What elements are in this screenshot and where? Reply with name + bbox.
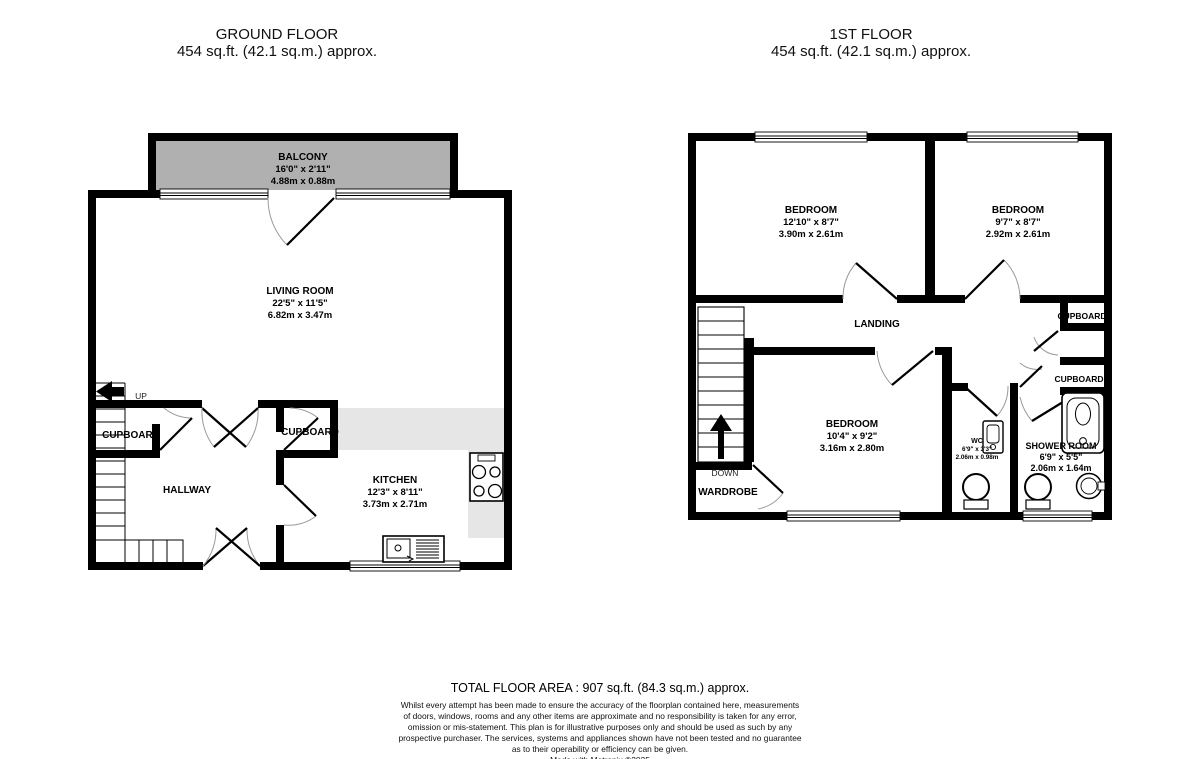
up-arrow-icon	[96, 381, 124, 402]
living-room-dims-ft: 22'5" x 11'5"	[272, 298, 327, 309]
bedroom1-dims-m: 3.90m x 2.61m	[779, 229, 843, 240]
ground-interior-walls	[96, 400, 338, 562]
first-floor-plan: BEDROOM 12'10" x 8'7" 3.90m x 2.61m BEDR…	[680, 125, 1120, 535]
stairs	[96, 381, 183, 562]
kitchen-label: KITCHEN	[373, 475, 417, 486]
window	[967, 132, 1078, 142]
bedroom3-dims-ft: 10'4" x 9'2"	[827, 431, 878, 442]
stove-icon	[470, 453, 503, 501]
living-room-label: LIVING ROOM	[266, 286, 333, 297]
hallway-label: HALLWAY	[163, 485, 211, 496]
disclaimer-line: prospective purchaser. The services, sys…	[0, 733, 1200, 744]
ground-floor-title: GROUND FLOOR	[77, 26, 477, 43]
metropix-credit: Made with Metropix ©2025	[0, 755, 1200, 759]
balcony-dims-ft: 16'0" x 2'11"	[275, 164, 330, 175]
cupboard-top-label: CUPBOARD	[1057, 311, 1106, 321]
first-floor-header: 1ST FLOOR 454 sq.ft. (42.1 sq.m.) approx…	[671, 26, 1071, 60]
toilet-icon	[1025, 474, 1051, 509]
shower-room-dims-m: 2.06m x 1.64m	[1030, 463, 1091, 473]
up-label: UP	[135, 391, 147, 401]
disclaimer-line: Whilst every attempt has been made to en…	[0, 700, 1200, 711]
cupboard-left-label: CUPBOARD	[102, 430, 160, 441]
wc-dims-m: 2.06m x 0.98m	[956, 454, 999, 461]
window	[1023, 511, 1092, 521]
first-floor-title: 1ST FLOOR	[671, 26, 1071, 43]
bedroom1-label: BEDROOM	[785, 205, 837, 216]
total-floor-area: TOTAL FLOOR AREA : 907 sq.ft. (84.3 sq.m…	[0, 681, 1200, 695]
window	[755, 132, 867, 142]
kitchen-dims-ft: 12'3" x 8'11"	[367, 487, 422, 498]
bedroom1-dims-ft: 12'10" x 8'7"	[783, 217, 839, 228]
ground-outer-walls	[88, 190, 512, 570]
bedroom2-dims-m: 2.92m x 2.61m	[986, 229, 1050, 240]
wc-dims-ft: 6'9" x 3'3"	[962, 446, 992, 453]
disclaimer-line: of doors, windows, rooms and any other i…	[0, 711, 1200, 722]
sink-icon	[383, 536, 444, 562]
floorplan-page: GROUND FLOOR 454 sq.ft. (42.1 sq.m.) app…	[0, 0, 1200, 759]
disclaimer: Whilst every attempt has been made to en…	[0, 700, 1200, 759]
ground-floor-area: 454 sq.ft. (42.1 sq.m.) approx.	[77, 43, 477, 60]
toilet-icon	[963, 474, 989, 509]
living-room-dims-m: 6.82m x 3.47m	[268, 310, 332, 321]
wardrobe-label: WARDROBE	[698, 487, 758, 498]
window	[160, 189, 268, 199]
window	[336, 189, 450, 199]
bedroom3-label: BEDROOM	[826, 419, 878, 430]
stairs	[698, 307, 744, 462]
door-arcs	[160, 198, 334, 566]
window	[787, 511, 900, 521]
landing-label: LANDING	[854, 319, 900, 330]
down-label: DOWN	[712, 468, 739, 478]
ground-floor-header: GROUND FLOOR 454 sq.ft. (42.1 sq.m.) app…	[77, 26, 477, 60]
cupboard-mid-label: CUPBOARD	[281, 427, 339, 438]
shower-room-label: SHOWER ROOM	[1026, 441, 1097, 451]
ground-floor-plan: BALCONY 16'0" x 2'11" 4.88m x 0.88m LIVI…	[80, 125, 520, 585]
balcony-label: BALCONY	[278, 152, 328, 163]
bedroom2-dims-ft: 9'7" x 8'7"	[995, 217, 1040, 228]
disclaimer-line: omission or mis-statement. This plan is …	[0, 722, 1200, 733]
round-basin-icon	[1077, 474, 1106, 499]
bedroom2-label: BEDROOM	[992, 205, 1044, 216]
kitchen-dims-m: 3.73m x 2.71m	[363, 499, 427, 510]
cupboard-bottom-label: CUPBOARD	[1054, 374, 1103, 384]
balcony-dims-m: 4.88m x 0.88m	[271, 176, 335, 187]
shower-room-dims-ft: 6'9" x 5'5"	[1040, 452, 1083, 462]
first-floor-area: 454 sq.ft. (42.1 sq.m.) approx.	[671, 43, 1071, 60]
disclaimer-line: as to their operability or efficiency ca…	[0, 744, 1200, 755]
wc-label: WC	[971, 438, 983, 445]
bedroom3-dims-m: 3.16m x 2.80m	[820, 443, 884, 454]
